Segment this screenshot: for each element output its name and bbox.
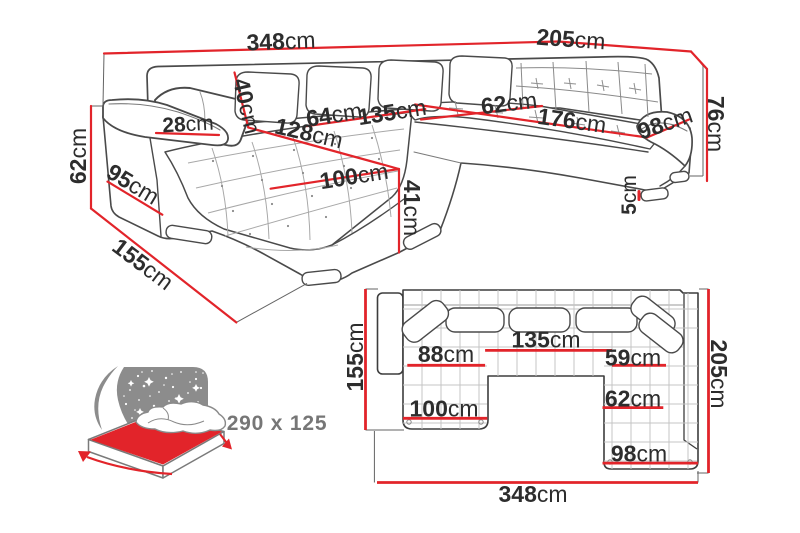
svg-text:98cm: 98cm xyxy=(611,441,667,467)
svg-text:348cm: 348cm xyxy=(498,481,567,507)
svg-text:205cm: 205cm xyxy=(706,339,732,408)
svg-text:59cm: 59cm xyxy=(605,345,661,371)
svg-text:28cm: 28cm xyxy=(162,112,214,138)
svg-text:100cm: 100cm xyxy=(409,396,478,422)
svg-text:290 x 125: 290 x 125 xyxy=(227,412,328,435)
svg-text:205cm: 205cm xyxy=(536,24,607,55)
svg-text:88cm: 88cm xyxy=(418,341,474,367)
svg-text:76cm: 76cm xyxy=(703,96,729,152)
svg-text:348cm: 348cm xyxy=(246,27,316,56)
svg-text:41cm: 41cm xyxy=(399,180,425,236)
svg-text:155cm: 155cm xyxy=(342,322,368,391)
svg-text:5cm: 5cm xyxy=(618,175,641,215)
svg-text:62cm: 62cm xyxy=(65,128,91,184)
svg-text:62cm: 62cm xyxy=(605,386,661,412)
svg-text:135cm: 135cm xyxy=(511,327,580,353)
